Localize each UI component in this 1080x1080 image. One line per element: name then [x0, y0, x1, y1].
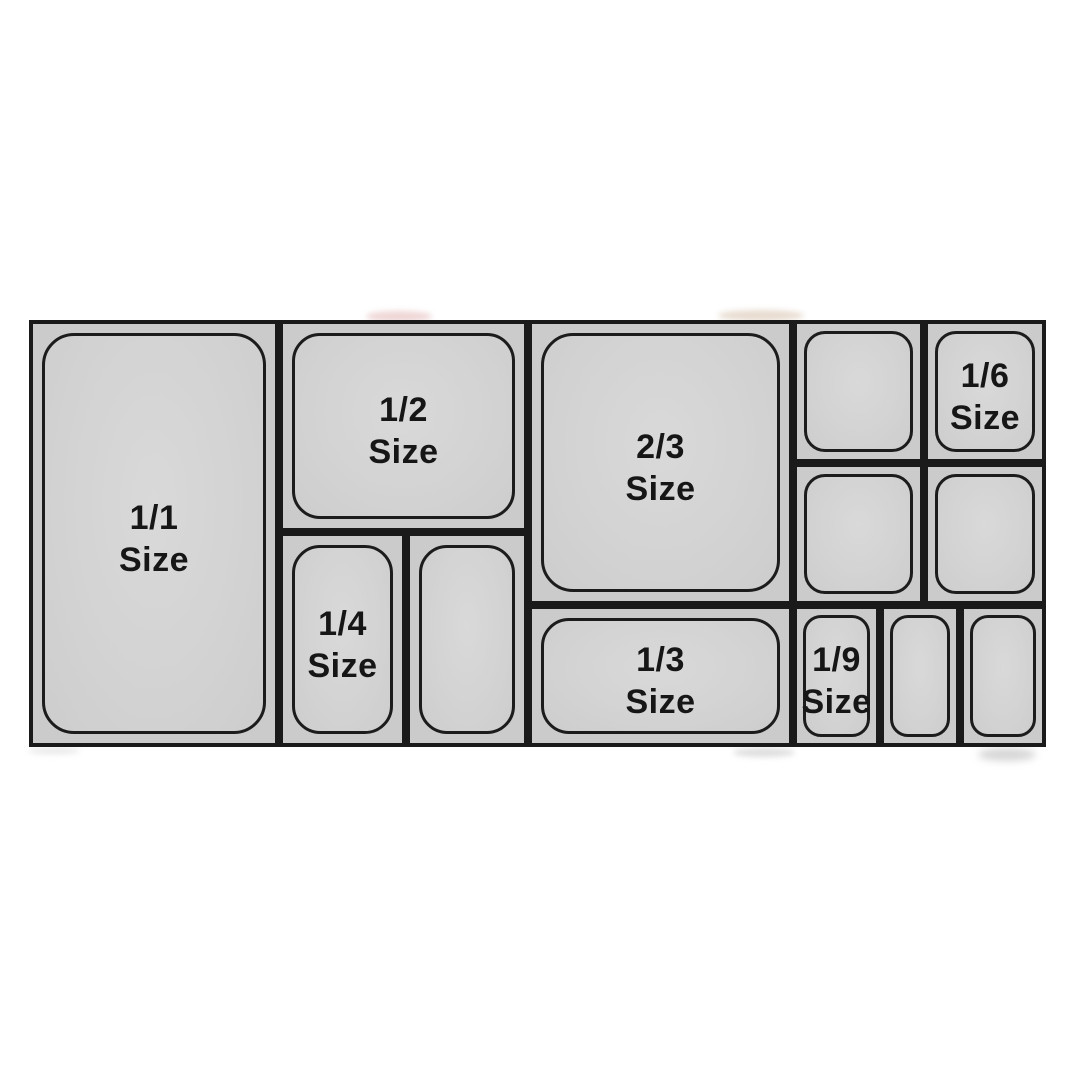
- pan-word: Size: [625, 468, 695, 510]
- pan-word: Size: [950, 397, 1020, 439]
- pan-1-3: 1/3 Size: [528, 605, 793, 747]
- pan-word: Size: [801, 681, 871, 723]
- pan-size-label: 1/6 Size: [928, 324, 1042, 459]
- pan-fraction: 1/2: [379, 389, 428, 431]
- pan-size-label: 1/2 Size: [283, 324, 524, 528]
- pan-1-9: 1/9 Size: [793, 605, 880, 747]
- pan-fraction: 1/3: [636, 639, 685, 681]
- pan-inner-outline: [890, 615, 950, 737]
- pan-word: Size: [307, 645, 377, 687]
- pan-fraction: 1/9: [812, 639, 861, 681]
- pan-1-6: 1/6 Size: [924, 320, 1046, 463]
- pan-inner-outline: [935, 474, 1035, 594]
- pan-size-label: 1/3 Size: [532, 609, 789, 743]
- pan-2-3: 2/3 Size: [528, 320, 793, 605]
- pan-word: Size: [119, 539, 189, 581]
- pan-1-2: 1/2 Size: [279, 320, 528, 532]
- photo-artifact-bottom-left: [28, 748, 80, 754]
- pan-fraction: 2/3: [636, 426, 685, 468]
- pan-inner-outline: [419, 545, 515, 734]
- pan-fraction: 1/6: [961, 355, 1010, 397]
- pan-1-4-plain: [406, 532, 528, 747]
- pan-1-6-plain-top-left: [793, 320, 924, 463]
- gastronorm-size-chart: 1/1 Size 1/2 Size 1/4 Size 2/3 Size 1: [0, 0, 1080, 1080]
- pan-size-label: 2/3 Size: [532, 324, 789, 601]
- pan-word: Size: [368, 431, 438, 473]
- pan-word: Size: [625, 681, 695, 723]
- pan-inner-outline: [804, 474, 913, 594]
- pan-inner-outline: [970, 615, 1036, 737]
- pan-1-6-plain-bottom-left: [793, 463, 924, 605]
- pan-size-label: 1/4 Size: [283, 536, 402, 743]
- pan-fraction: 1/4: [318, 603, 367, 645]
- photo-artifact-bottom-right: [978, 748, 1036, 761]
- pan-size-label: 1/9 Size: [797, 609, 876, 743]
- photo-artifact-bottom-mid: [733, 748, 795, 757]
- pan-inner-outline: [804, 331, 913, 452]
- pan-1-4: 1/4 Size: [279, 532, 406, 747]
- pan-1-6-plain-bottom-right: [924, 463, 1046, 605]
- pan-size-label: 1/1 Size: [33, 324, 275, 743]
- pan-fraction: 1/1: [130, 497, 179, 539]
- pan-1-9-plain-right: [960, 605, 1046, 747]
- pan-1-1: 1/1 Size: [29, 320, 279, 747]
- pan-1-9-plain-middle: [880, 605, 960, 747]
